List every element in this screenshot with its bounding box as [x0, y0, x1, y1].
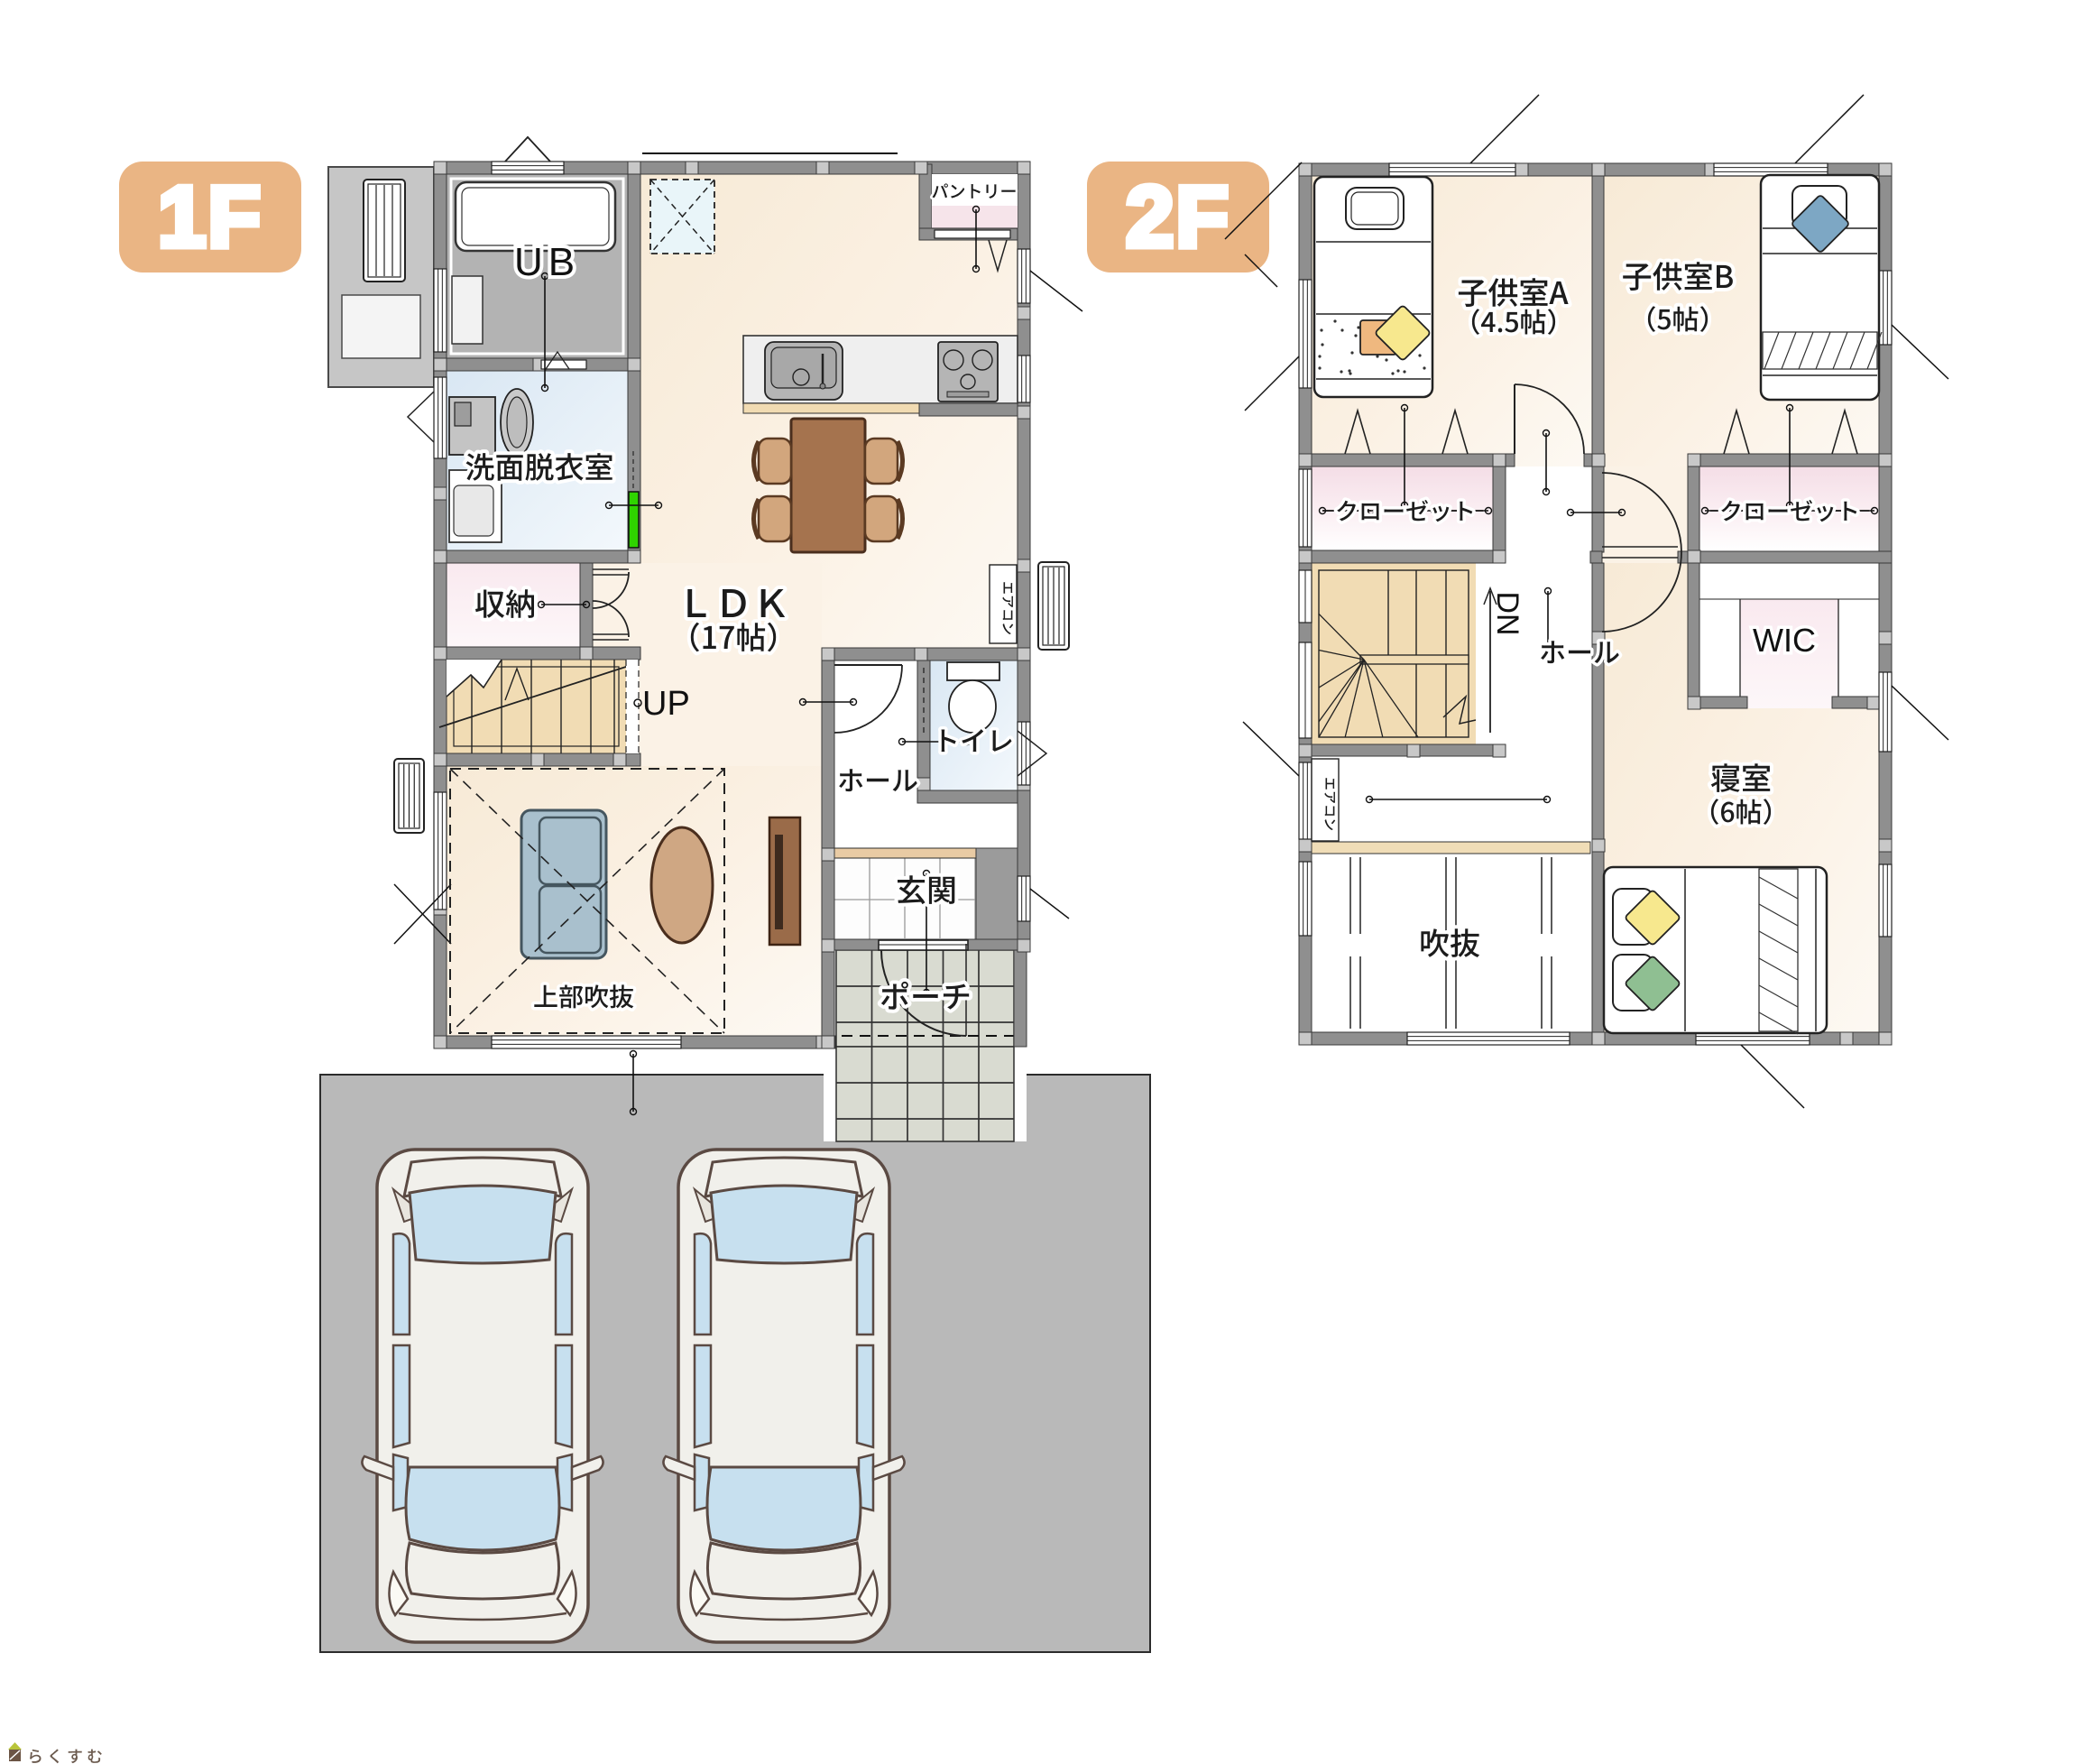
svg-text:WIC: WIC: [1753, 622, 1816, 659]
svg-text:UP: UP: [642, 685, 690, 723]
svg-text:1F: 1F: [158, 169, 262, 265]
svg-text:UB: UB: [514, 240, 580, 284]
svg-text:2F: 2F: [1126, 169, 1230, 265]
svg-text:DN: DN: [1490, 591, 1524, 635]
